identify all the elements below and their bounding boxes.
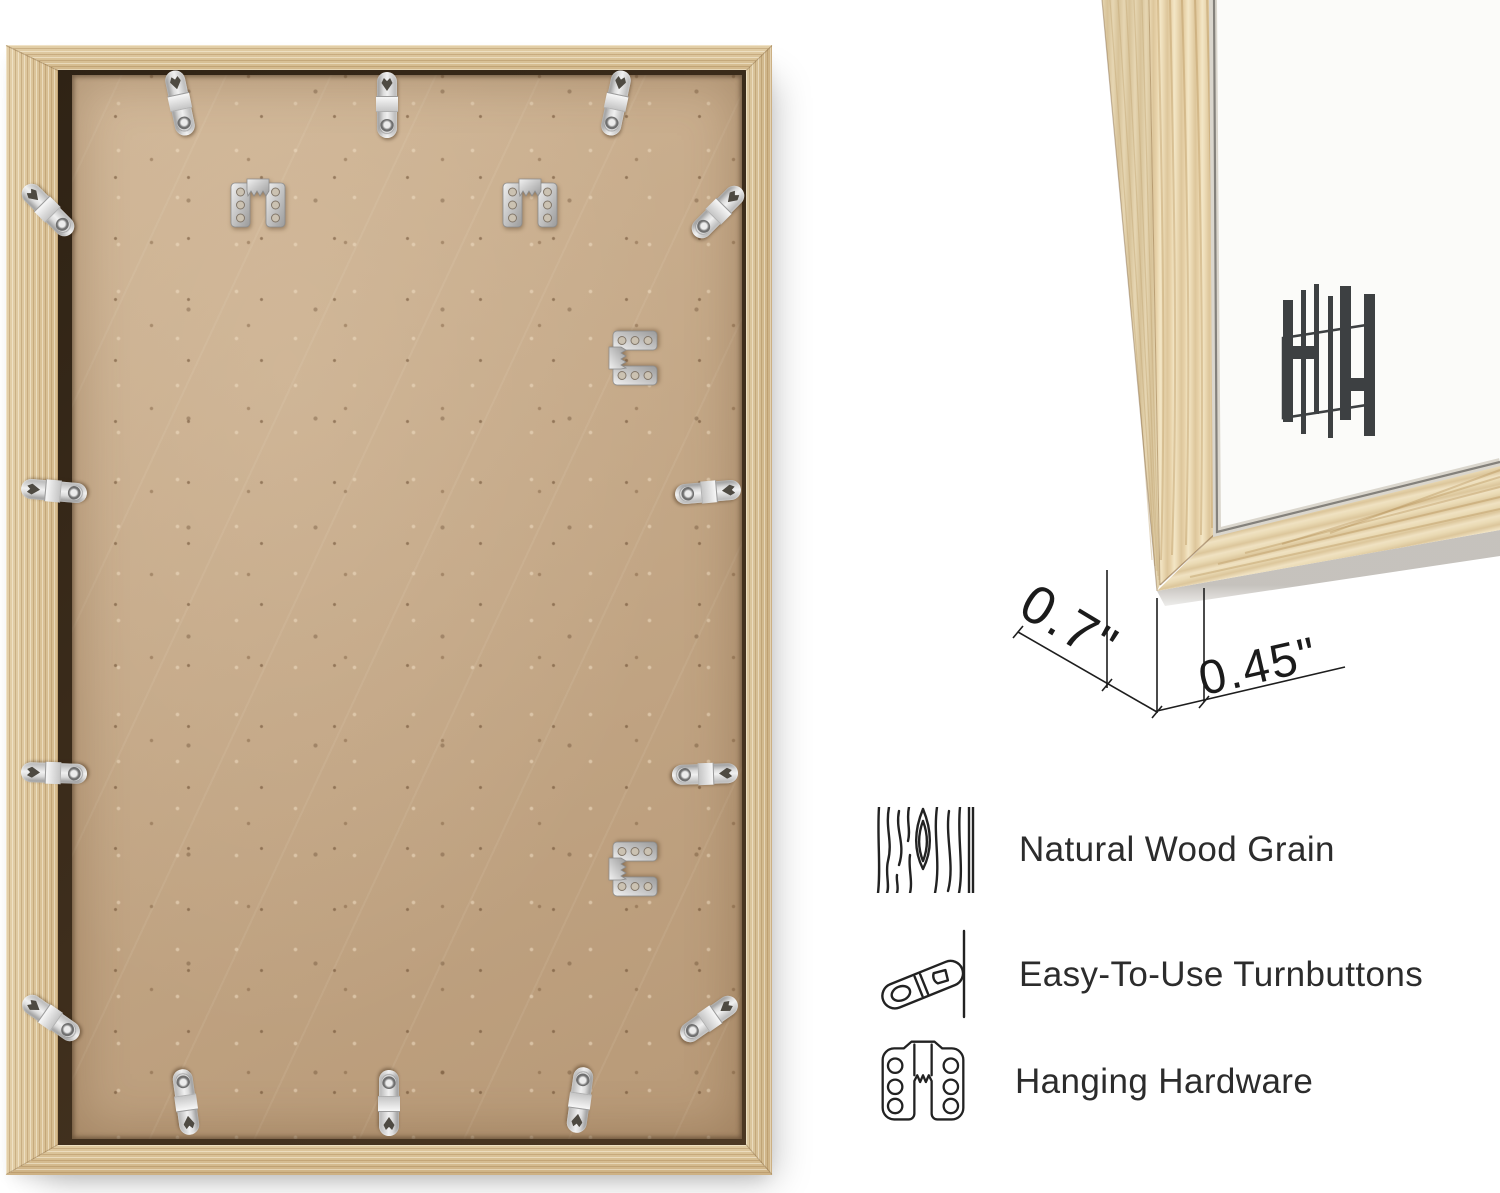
turnbutton-icon [875, 929, 975, 1021]
frame-corner-photo [1080, 0, 1500, 620]
turnbutton [377, 72, 397, 138]
mat-board [1213, 0, 1500, 532]
turnbutton [379, 1070, 399, 1136]
feature-label: Natural Wood Grain [1019, 830, 1335, 870]
dimension-annotation: 0.7" 0.45" [990, 550, 1370, 750]
frame-wood-rail-right [746, 45, 772, 1175]
turnbutton [672, 763, 739, 785]
frame-wood-rail-bottom [6, 1145, 772, 1175]
sawtooth-hanger [608, 330, 658, 386]
face-dimension-label: 0.45" [1194, 628, 1323, 707]
feature-row: Hanging Hardware [875, 1032, 1313, 1132]
feature-label: Easy-To-Use Turnbuttons [1019, 955, 1423, 995]
feature-row: Easy-To-Use Turnbuttons [875, 925, 1423, 1025]
feature-label: Hanging Hardware [1015, 1062, 1313, 1102]
feature-row: Natural Wood Grain [875, 800, 1335, 900]
product-feature-image: 0.7" 0.45" Natural Wood Grain [0, 0, 1500, 1193]
turnbutton [21, 762, 88, 784]
sawtooth-hanger [502, 178, 558, 228]
mdf-backing-board [72, 75, 742, 1139]
wood-grain-icon [875, 807, 975, 893]
sawtooth-hanger [608, 841, 658, 897]
sawtooth-hanger [230, 178, 286, 228]
frame-back-photo [6, 45, 772, 1175]
hanging-hardware-icon [875, 1037, 971, 1127]
frame-wood-rail-top [6, 45, 772, 70]
